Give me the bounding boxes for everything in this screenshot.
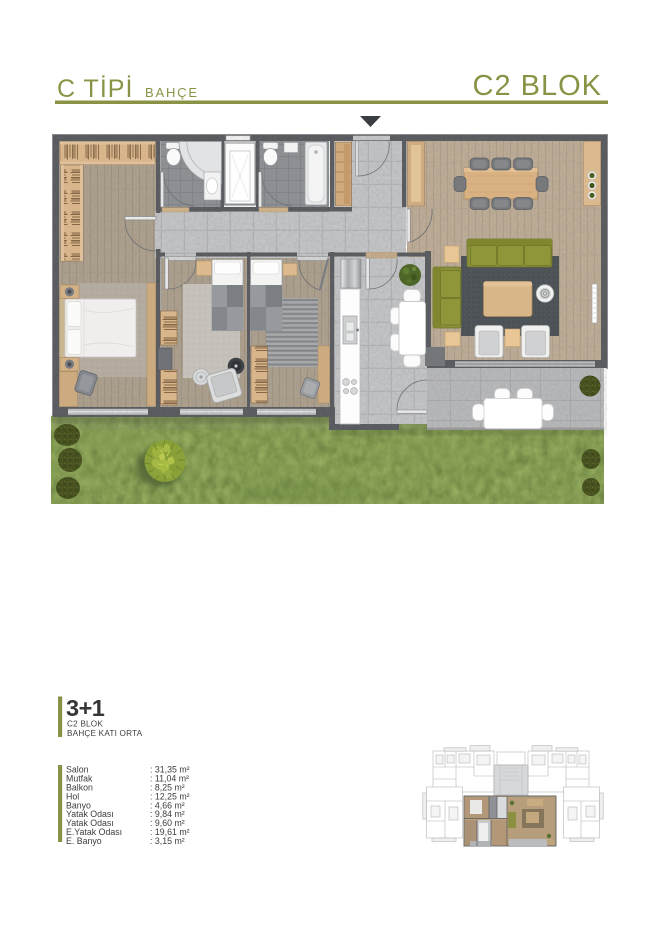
svg-text:C2 BLOK: C2 BLOK [473,70,603,102]
svg-text:: 3,15 m²: : 3,15 m² [150,836,185,846]
svg-text:E. Banyo: E. Banyo [66,836,102,846]
svg-text:C TİPİ: C TİPİ [57,74,133,103]
svg-text:C2 BLOK: C2 BLOK [67,720,103,729]
svg-text:BAHÇE KATI ORTA: BAHÇE KATI ORTA [67,729,143,738]
svg-text:3+1: 3+1 [66,695,105,721]
svg-text:BAHÇE: BAHÇE [145,85,199,100]
